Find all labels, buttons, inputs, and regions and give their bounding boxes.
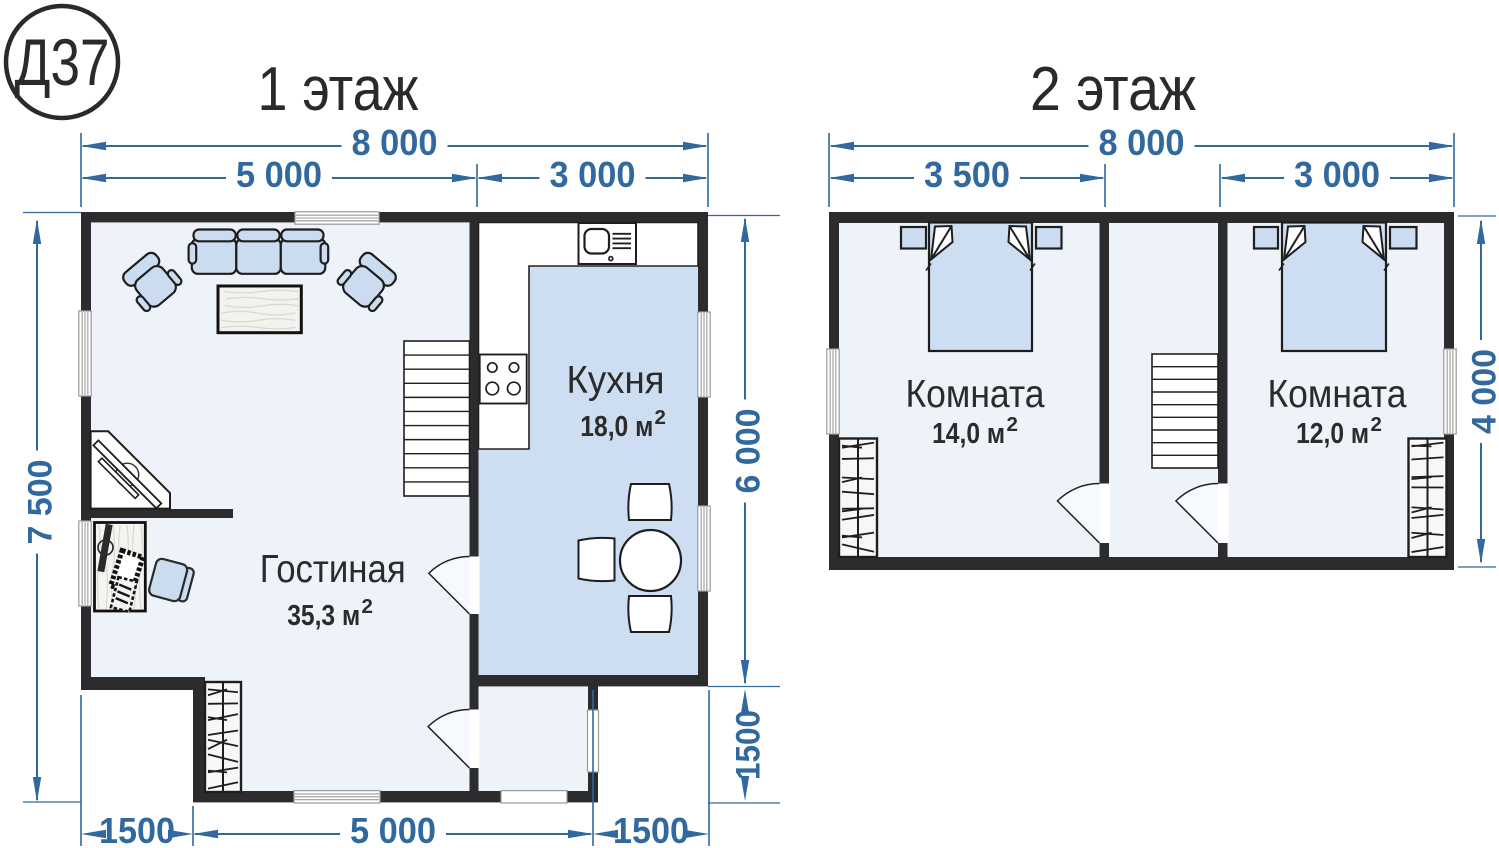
svg-text:2: 2 [362,595,373,618]
svg-text:Кухня: Кухня [567,359,665,402]
svg-text:8 000: 8 000 [352,122,438,163]
svg-text:8 000: 8 000 [1099,122,1185,163]
svg-text:2 этаж: 2 этаж [1030,55,1196,124]
svg-text:5 000: 5 000 [350,810,436,848]
svg-text:2: 2 [655,406,666,429]
svg-text:2: 2 [1371,413,1382,436]
svg-text:Д37: Д37 [15,25,110,99]
svg-text:Гостиная: Гостиная [260,548,406,591]
svg-text:18,0 м: 18,0 м [580,411,653,443]
svg-text:3 500: 3 500 [924,154,1010,195]
svg-text:1500: 1500 [730,710,768,780]
svg-text:Комната: Комната [906,373,1045,416]
svg-text:1500: 1500 [99,810,175,848]
svg-text:7 500: 7 500 [22,459,60,544]
svg-text:Комната: Комната [1268,373,1407,416]
svg-text:12,0 м: 12,0 м [1296,418,1369,450]
svg-text:5 000: 5 000 [236,154,322,195]
svg-text:3 000: 3 000 [1294,154,1380,195]
svg-text:35,3 м: 35,3 м [287,600,360,632]
svg-text:2: 2 [1007,413,1018,436]
svg-text:14,0 м: 14,0 м [932,418,1005,450]
svg-text:4 000: 4 000 [1466,349,1499,434]
svg-text:1 этаж: 1 этаж [258,55,419,124]
svg-text:1500: 1500 [613,810,689,848]
svg-text:3 000: 3 000 [550,154,636,195]
svg-text:6 000: 6 000 [730,408,768,493]
